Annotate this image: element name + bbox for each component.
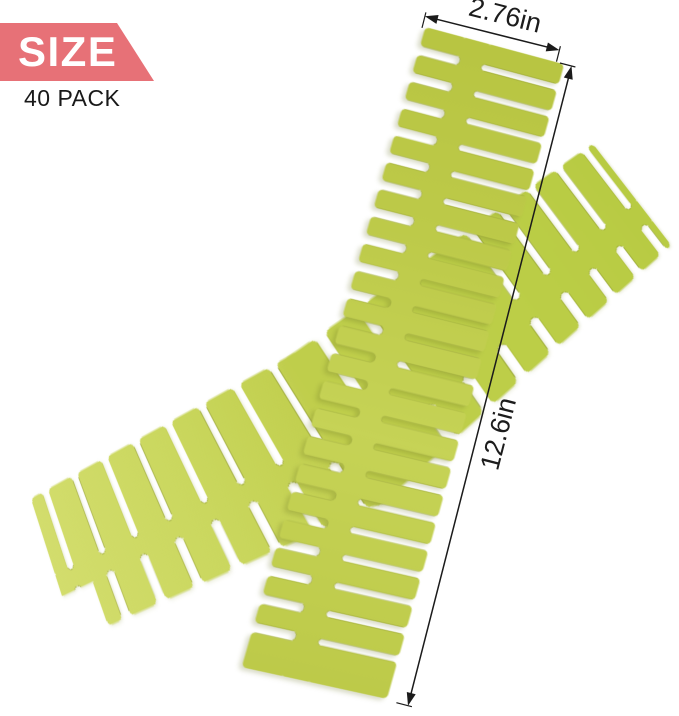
svg-text:2.76in: 2.76in <box>466 0 545 39</box>
